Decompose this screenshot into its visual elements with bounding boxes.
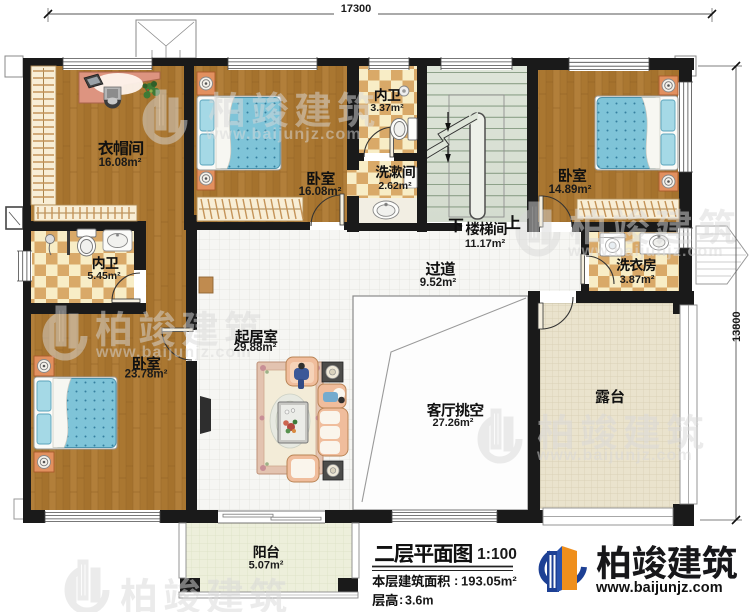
svg-text:23.78m²: 23.78m² [125, 369, 168, 381]
svg-text:www.baijunjz.com: www.baijunjz.com [567, 243, 724, 260]
svg-text:3.37m²: 3.37m² [370, 102, 404, 114]
svg-text::: : [454, 573, 458, 588]
svg-text:14.89m²: 14.89m² [549, 184, 592, 196]
svg-text:www.baijunjz.com: www.baijunjz.com [95, 344, 252, 361]
svg-text:16.08m²: 16.08m² [299, 186, 342, 198]
svg-text:3.87m²: 3.87m² [620, 274, 655, 286]
svg-text:16.08m²: 16.08m² [99, 157, 142, 169]
svg-text:17300: 17300 [341, 3, 372, 15]
svg-text:www.baijunjz.com: www.baijunjz.com [536, 447, 693, 464]
svg-text:29.88m²: 29.88m² [234, 342, 277, 354]
svg-text:www.baijunjz.com: www.baijunjz.com [205, 126, 362, 143]
svg-text:www.baijunjz.com: www.baijunjz.com [595, 580, 723, 596]
svg-text:9.52m²: 9.52m² [420, 277, 457, 289]
svg-text:13800: 13800 [731, 311, 743, 342]
svg-text:2.62m²: 2.62m² [378, 180, 412, 192]
svg-text:193.05m²: 193.05m² [461, 574, 517, 589]
svg-text:5.45m²: 5.45m² [87, 270, 121, 282]
svg-text:3.6m: 3.6m [405, 594, 434, 608]
svg-text::: : [399, 592, 403, 607]
svg-text:27.26m²: 27.26m² [433, 417, 474, 429]
svg-text:5.07m²: 5.07m² [249, 560, 284, 572]
svg-text:1:100: 1:100 [477, 546, 517, 563]
svg-text:11.17m²: 11.17m² [465, 238, 506, 250]
